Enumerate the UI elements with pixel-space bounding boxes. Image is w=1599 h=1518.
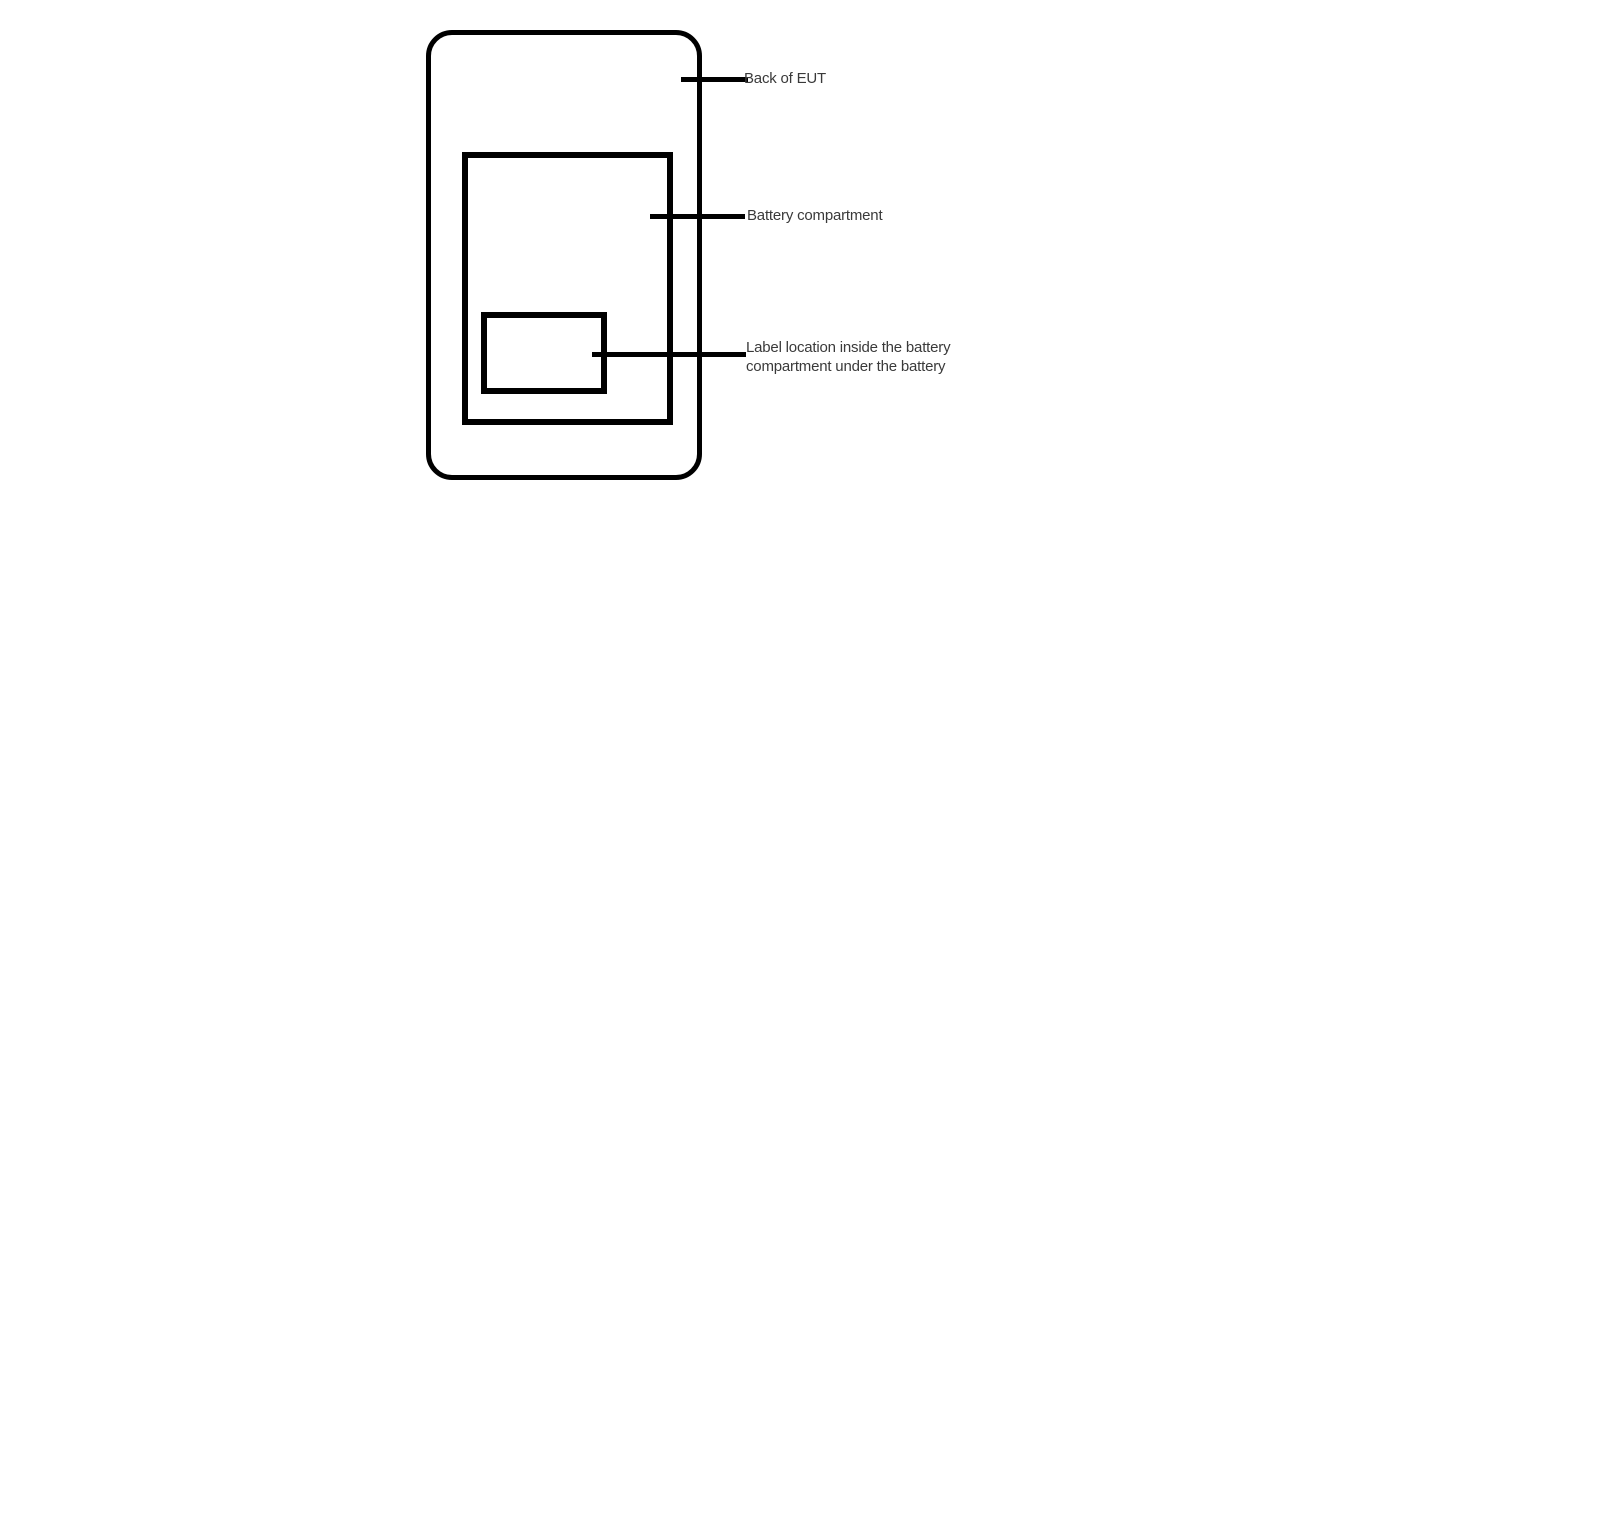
label-location-diagram: Back of EUT Battery compartment Label lo… [0,0,1599,1518]
label-location-caption: Label location inside the battery compar… [746,338,950,376]
back-of-eut-caption: Back of EUT [744,71,826,87]
label-location-caption-line2: compartment under the battery [746,357,950,376]
label-location-outline [481,312,607,394]
leader-line-back-of-eut [681,77,748,82]
battery-compartment-caption: Battery compartment [747,208,882,224]
leader-line-label-location [592,352,746,357]
leader-line-battery-compartment [650,214,745,219]
label-location-caption-line1: Label location inside the battery [746,338,950,357]
